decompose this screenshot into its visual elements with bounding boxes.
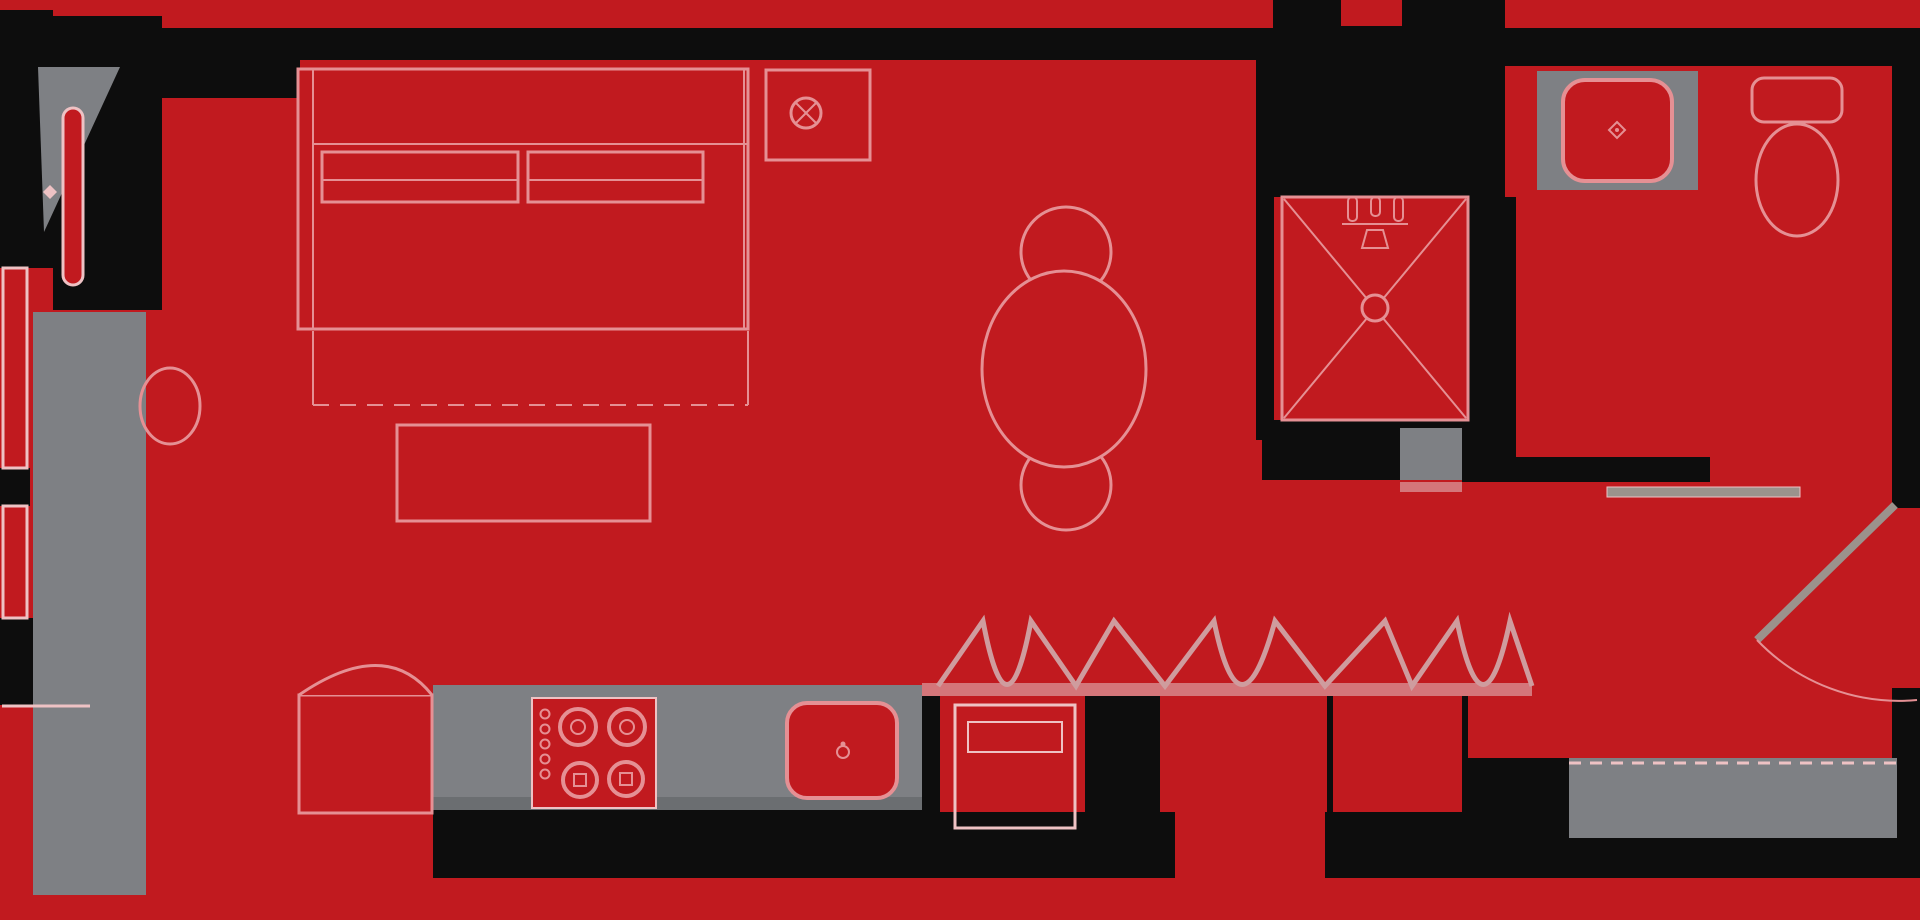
closet-cell-2: [1160, 692, 1327, 812]
wall-shower-right: [1468, 197, 1516, 457]
wall-top-bathroom: [1505, 28, 1892, 66]
kitchen-faucet-dot: [841, 742, 846, 747]
floor-plan-svg: [0, 0, 1920, 920]
wall-shower-left: [1256, 37, 1274, 440]
fridge-body: [299, 695, 432, 813]
shower-step: [1400, 428, 1462, 480]
door-threshold-bar: [1607, 487, 1800, 497]
window-strip-lower: [3, 506, 27, 618]
closet-baseline-band: [922, 683, 1532, 696]
wall-bed-head-block: [162, 28, 300, 98]
shower-head-bell: [1362, 230, 1388, 248]
toilet-bowl: [1756, 124, 1838, 236]
dining-table: [982, 271, 1146, 467]
closet-cell-3: [1333, 692, 1462, 812]
wall-right-upper: [1892, 28, 1920, 508]
wardrobe-left: [33, 312, 146, 895]
hall-doorway-band: [1400, 482, 1462, 492]
exterior-margin-bottom: [0, 878, 1920, 920]
floor-plan-image: [0, 0, 1920, 920]
wall-kitchen-bottom: [433, 810, 935, 878]
nook-door-leaf: [63, 108, 83, 285]
entry-floor: [1468, 482, 1892, 758]
window-strip-upper: [3, 268, 27, 468]
wall-bathroom-bottom: [1462, 457, 1710, 482]
pillow-left: [322, 152, 518, 202]
kitchen-sink: [787, 703, 897, 798]
entry-mat: [1569, 758, 1897, 838]
pillow-right: [528, 152, 703, 202]
wall-shower-top-mass: [1273, 0, 1505, 197]
vanity-sink-dot-center: [1615, 128, 1619, 132]
wall-top-notch: [1341, 0, 1402, 26]
toilet-tank: [1752, 78, 1842, 122]
shower-drain: [1362, 295, 1388, 321]
wall-kitchen-divider: [922, 683, 935, 878]
bench: [397, 425, 650, 521]
wall-window-mullion-upper: [0, 468, 30, 506]
nightstand: [766, 70, 870, 160]
wall-window-mullion-lower: [0, 618, 33, 705]
